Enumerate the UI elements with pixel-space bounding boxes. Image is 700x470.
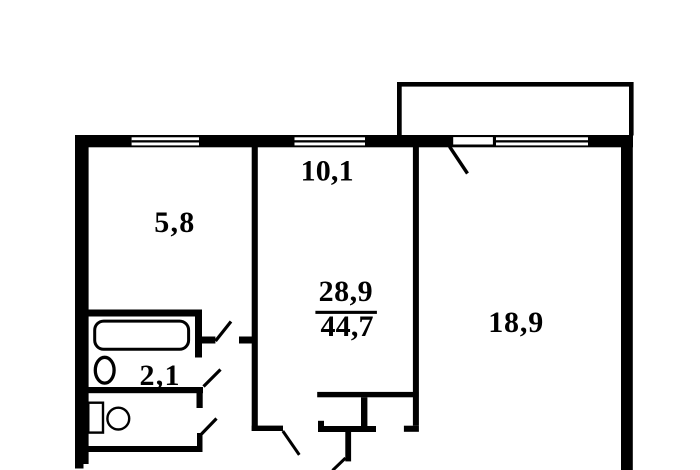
svg-text:18,9: 18,9 — [488, 306, 543, 339]
svg-text:2,1: 2,1 — [140, 359, 180, 392]
svg-text:44,7: 44,7 — [321, 310, 374, 343]
svg-text:28,9: 28,9 — [319, 275, 373, 308]
svg-text:5,8: 5,8 — [154, 206, 194, 239]
svg-text:10,1: 10,1 — [301, 154, 354, 187]
